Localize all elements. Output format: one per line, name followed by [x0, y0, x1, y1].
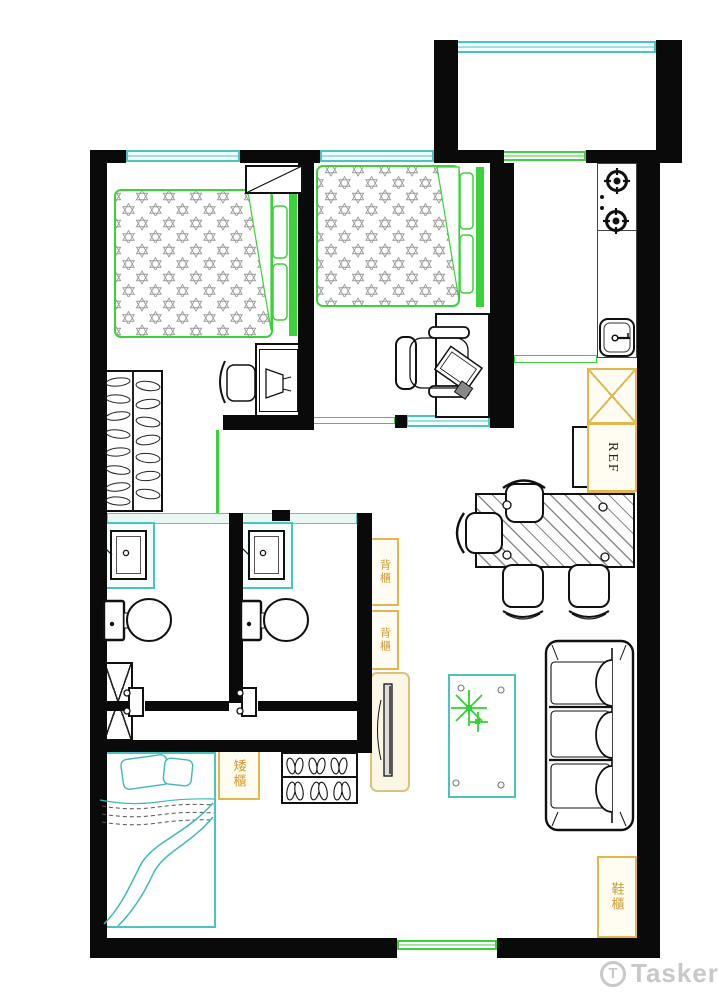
wall-kitchen-top [586, 150, 660, 163]
wall-bedroom-divider [298, 163, 314, 430]
toilet-1 [104, 599, 171, 641]
refrigerator: REF [587, 423, 637, 492]
entry-door [397, 940, 497, 950]
green-partition-bedroom2 [313, 417, 395, 424]
single-bed [98, 752, 216, 928]
window-bedroom2 [320, 150, 434, 162]
window-bedroom1 [126, 150, 240, 162]
chair-bedroom1 [220, 361, 255, 403]
wash-basin-1-bowl [116, 536, 141, 574]
wall-right-outer [637, 162, 660, 958]
window-balcony [456, 41, 656, 53]
wall-bath1-stub [107, 701, 128, 711]
watermark-text: Tasker [631, 958, 718, 989]
nightstand [246, 166, 302, 193]
low-cabinet-label: 矮櫃 [230, 759, 249, 789]
green-partition-corridor [514, 355, 597, 363]
back-cabinet-upper: 背櫃 [370, 538, 399, 606]
gas-stove [597, 163, 637, 231]
balcony-sliding-door [502, 151, 586, 161]
watermark: T Tasker [600, 958, 718, 989]
sofa-three-seat [546, 641, 633, 830]
low-cabinet: 矮櫃 [218, 748, 260, 800]
shoe-cabinet: 鞋櫃 [597, 856, 637, 938]
wall-bottom-right [497, 938, 660, 958]
wall-bath-top-stub [272, 510, 290, 521]
wash-basin-2-bowl [254, 536, 279, 574]
wall-left-outer [90, 150, 107, 958]
back-cabinet-upper-label: 背櫃 [377, 559, 393, 585]
tall-cabinet-x [587, 368, 637, 424]
wall-bath1-door-wall [145, 701, 229, 711]
desk-bedroom1-inner [259, 349, 298, 412]
wall-bathroom-bottom [107, 740, 357, 752]
wall-balcony-bottom [434, 150, 504, 163]
shoe-cabinet-label: 鞋櫃 [608, 882, 627, 912]
wall-top-2 [240, 150, 320, 163]
bedroom1-door-leaf [216, 430, 219, 514]
desk-bedroom2 [435, 313, 490, 418]
wall-bathroom-right [357, 513, 372, 753]
wall-bedroom2-right [490, 163, 514, 428]
slipper-cabinet-shelf [283, 776, 356, 778]
coffee-table [448, 674, 516, 798]
tv-cabinet [370, 672, 410, 792]
toilet-2 [241, 599, 308, 641]
slipper-cabinet [281, 752, 358, 804]
wall-bottom-left [90, 938, 397, 958]
wall-bedroom1-bottom [223, 415, 313, 430]
wall-bedroom2-stub [395, 415, 407, 428]
double-bed-1 [115, 190, 297, 337]
wardrobe [103, 370, 163, 512]
wall-bath2-door-wall [258, 701, 357, 711]
tasker-logo-icon: T [600, 961, 626, 987]
wall-bathroom-separator [229, 513, 243, 703]
floor-plan: REF 背櫃 背櫃 矮櫃 鞋櫃 [0, 0, 718, 1000]
double-bed-2 [317, 166, 484, 307]
wall-balcony-left [434, 40, 458, 163]
dining-table [475, 493, 635, 568]
back-cabinet-lower-label: 背櫃 [377, 627, 393, 653]
wall-balcony-right [656, 40, 682, 163]
wall-top-1 [90, 150, 126, 163]
refrigerator-label: REF [604, 442, 620, 474]
back-cabinet-lower: 背櫃 [370, 610, 399, 670]
